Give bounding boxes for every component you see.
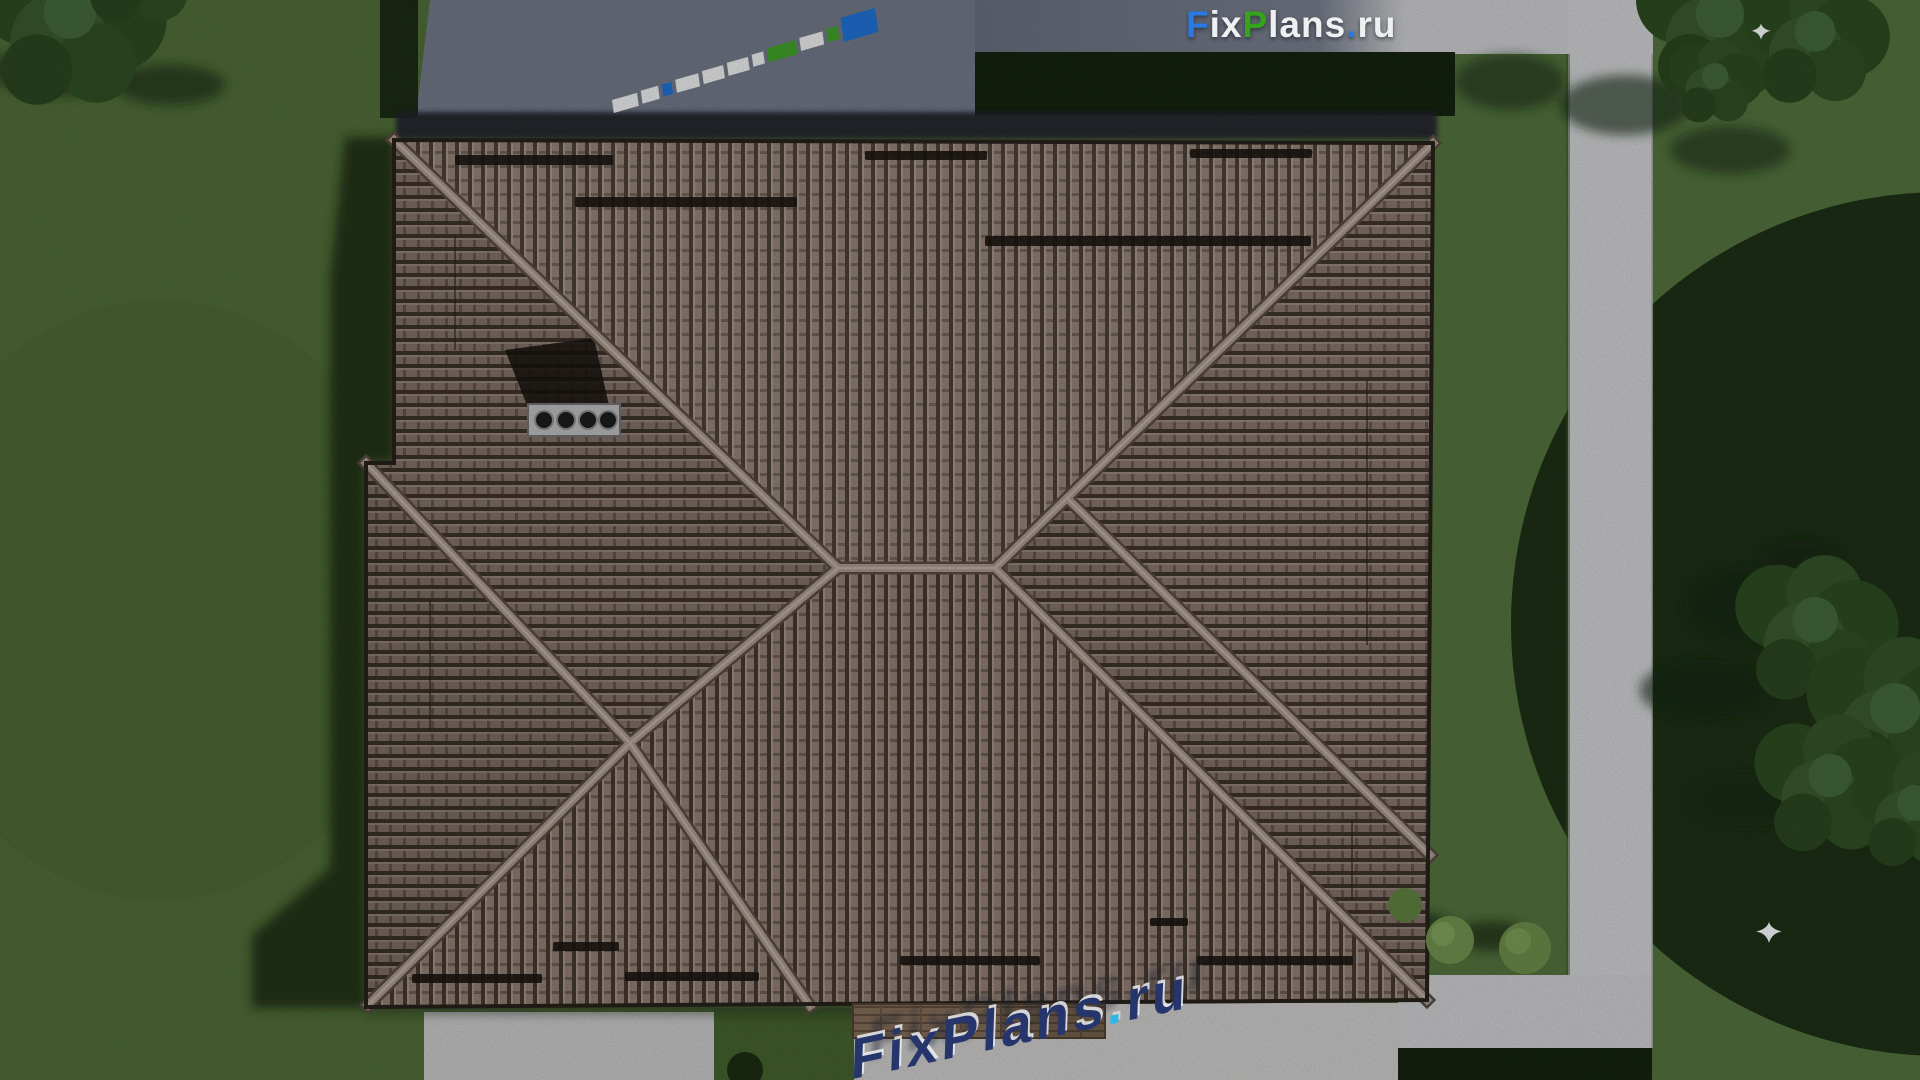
logo-letter-f: F: [1186, 4, 1210, 45]
logo-letters-ix: ix: [1210, 4, 1243, 45]
watermark-text-ru: ru: [1125, 955, 1190, 1033]
logo-dot: .: [1346, 4, 1357, 45]
scene-svg: [0, 0, 1920, 1080]
watermark-dot: .: [1106, 968, 1127, 1037]
logo-letters-lans: lans: [1268, 4, 1346, 45]
logo-letter-p: P: [1242, 4, 1268, 45]
aerial-render: FixPlans.ru FixPlans.ru FixPlans.ru: [0, 0, 1920, 1080]
fixplans-logo: FixPlans.ru: [1186, 4, 1396, 46]
texture-grain: [0, 0, 1920, 1080]
logo-letters-ru: ru: [1357, 4, 1396, 45]
